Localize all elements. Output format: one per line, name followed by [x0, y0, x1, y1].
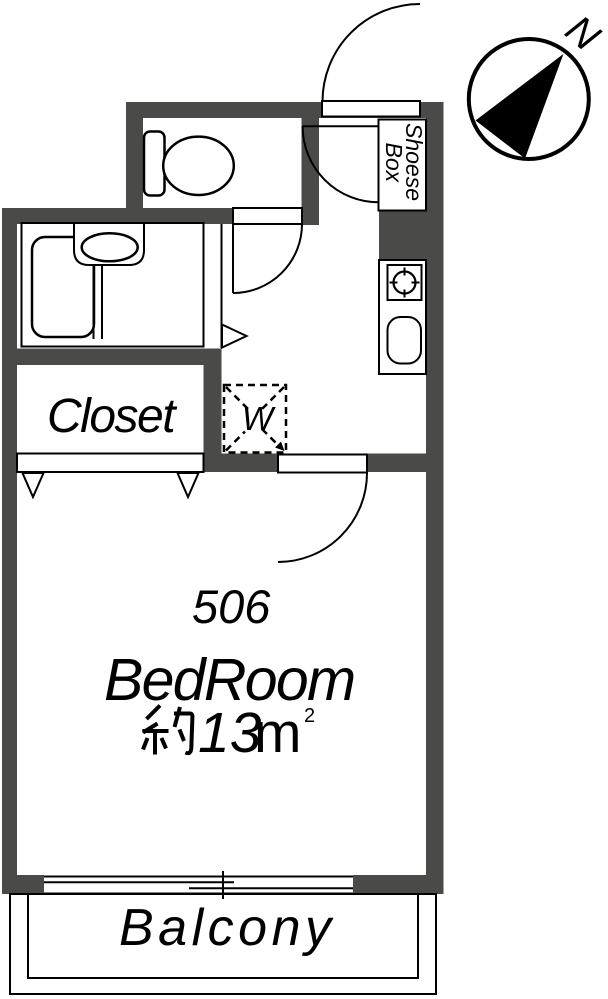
svg-text:Balcony: Balcony — [119, 899, 336, 957]
svg-text:13: 13 — [198, 701, 262, 765]
svg-text:m: m — [254, 701, 301, 765]
svg-text:2: 2 — [304, 705, 315, 727]
svg-text:506: 506 — [192, 580, 271, 633]
svg-text:W: W — [242, 400, 276, 437]
svg-text:Closet: Closet — [47, 390, 177, 443]
